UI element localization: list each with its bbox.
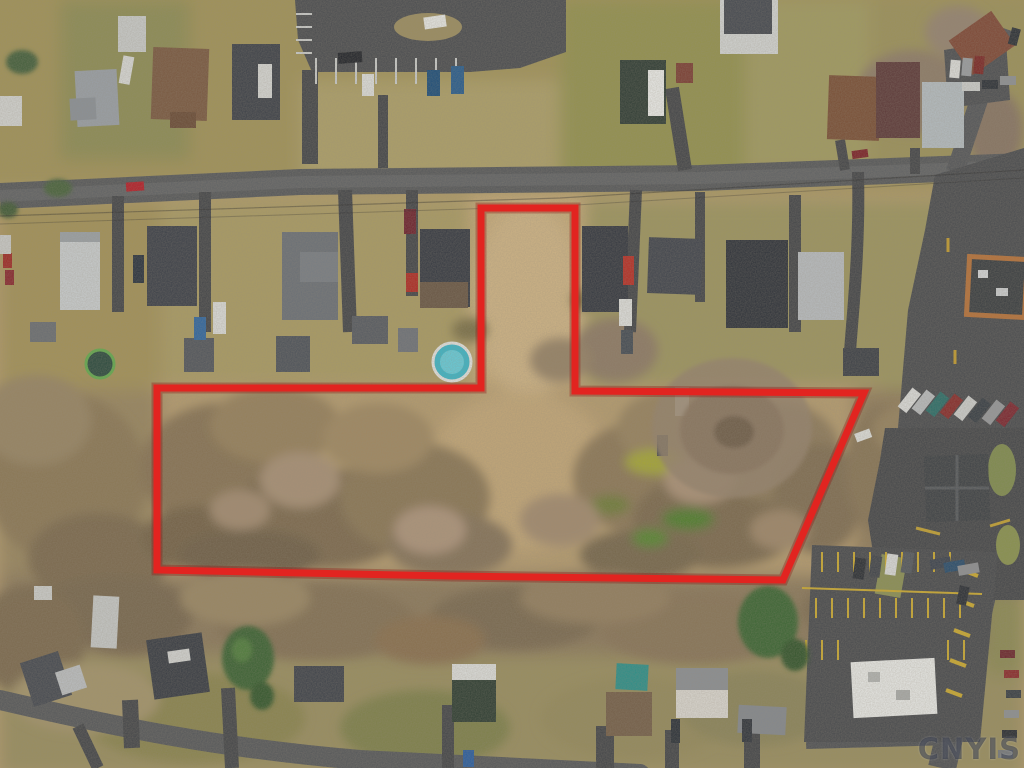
scene-root [0,0,1024,768]
aerial-photo [0,0,1024,768]
watermark: CNYIS [918,732,1021,766]
aerial-photo-stage: CNYIS [0,0,1024,768]
